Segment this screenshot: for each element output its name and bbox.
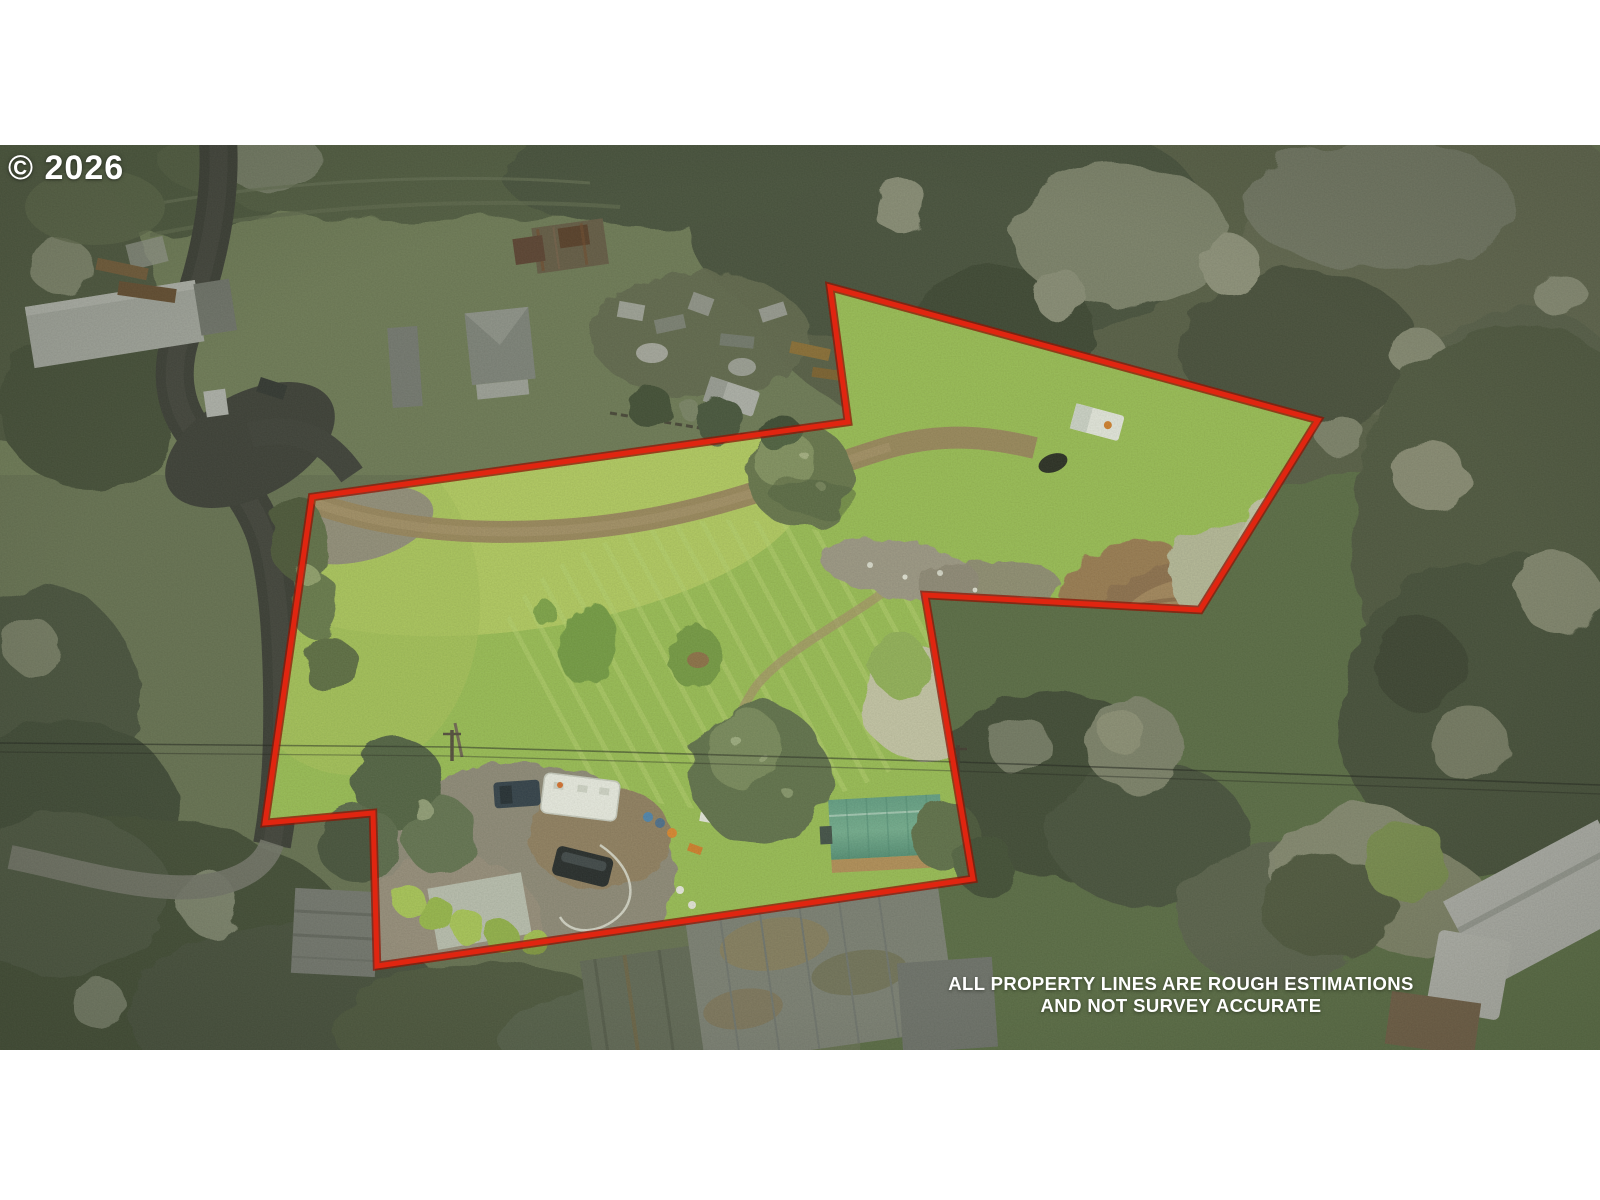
survey-disclaimer-line2: AND NOT SURVEY ACCURATE bbox=[948, 995, 1414, 1017]
survey-disclaimer-line1: ALL PROPERTY LINES ARE ROUGH ESTIMATIONS bbox=[948, 973, 1414, 995]
letterbox-bottom bbox=[0, 1050, 1600, 1200]
survey-disclaimer: ALL PROPERTY LINES ARE ROUGH ESTIMATIONS… bbox=[948, 973, 1414, 1017]
aerial-photo-scene bbox=[0, 145, 1600, 1050]
page-root: { "watermark": { "text": "© 2026" }, "di… bbox=[0, 0, 1600, 1200]
aerial-photo: © 2026 ALL PROPERTY LINES ARE ROUGH ESTI… bbox=[0, 145, 1600, 1050]
copyright-watermark: © 2026 bbox=[8, 149, 124, 188]
letterbox-top bbox=[0, 0, 1600, 145]
